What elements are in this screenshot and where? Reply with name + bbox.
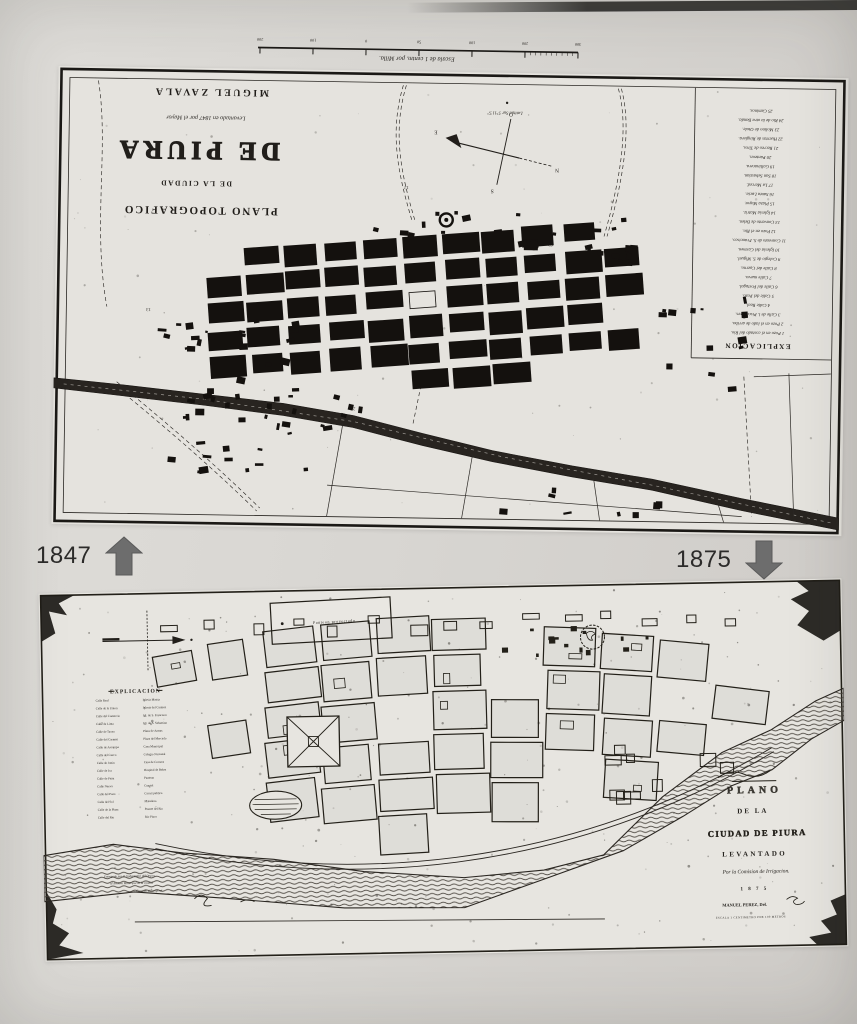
- photographed-document-page: Escala de 1 centm. por Milla. 3002001005…: [0, 0, 857, 1024]
- bottom-legend-item: Casa de Correos: [144, 760, 165, 764]
- top-legend-item: 12 Pozo en el Rio.: [742, 229, 776, 235]
- top-legend-item: 2 Pozo en el lado de arriba.: [732, 321, 783, 327]
- bottom-legend-item: Calle del Carmen: [96, 737, 118, 741]
- field-lines: [327, 366, 831, 524]
- top-map-svg: EXPLICACION 1 Pozo en el costado del Rio…: [51, 66, 848, 536]
- bottom-legend-item: Calle de Lima: [96, 722, 114, 726]
- year-label-1847: 1847: [36, 542, 91, 570]
- top-legend-item: 22 Huertas de Ringlera.: [738, 136, 782, 142]
- road-number: 12: [403, 185, 408, 190]
- svg-text:200: 200: [257, 37, 263, 42]
- note-line: Copiado del original.: [136, 888, 163, 893]
- top-legend-item: 19 Gallinacera.: [746, 164, 775, 169]
- top-legend-item: 6 Calle del Portugal.: [739, 284, 778, 290]
- top-legend-item: 15 Plaza Mayor.: [744, 201, 774, 206]
- bottom-legend-item: Calle de la Plaza: [98, 807, 119, 811]
- legend-items: 1 Pozo en el costado del Rio.2 Pozo en e…: [730, 108, 788, 336]
- year-label-1875-row: 1875: [676, 540, 783, 580]
- bottom-legend-item: Calle de Arequipa: [96, 745, 119, 749]
- bottom-legend-item: Cuartel: [144, 783, 153, 787]
- bottom-legend-item: Rio Piura: [145, 815, 157, 819]
- scale-bar: Escala de 1 centm. por Milla. 3002001005…: [250, 35, 584, 66]
- map-1875-ciudad-de-piura: Panteon proyectado: [39, 578, 849, 961]
- svg-text:0: 0: [365, 39, 367, 44]
- top-legend-item: 18 San Sebastian.: [744, 173, 777, 179]
- bottom-legend-item: Panteon: [144, 776, 154, 780]
- top-legend-item: 7 Calle nueva.: [745, 275, 772, 280]
- top-legend-item: 8 Calle del Cuerno.: [740, 266, 776, 272]
- bottom-legend-item: Calle de Paita: [97, 776, 115, 780]
- svg-text:50: 50: [417, 39, 421, 44]
- compass-icon: O S N E: [433, 110, 560, 195]
- title-delineator: MANUEL PEREZ, Del.: [722, 902, 767, 908]
- title-ornament: PLANO: [727, 785, 782, 797]
- title-levantado: LEVANTADO: [722, 849, 787, 858]
- compass-letter-n: N: [555, 167, 559, 173]
- latitude-note: Latitud Sur 5°11'5'': [486, 110, 524, 116]
- top-legend-item: 1 Pozo en el costado del Rio.: [731, 330, 785, 336]
- bottom-legend-item: Hospital de Belen: [144, 768, 167, 772]
- legend-header: EXPLICACION: [110, 688, 161, 695]
- title-de-piura: DE PIURA: [115, 135, 280, 167]
- city-grid-blocks: [152, 608, 773, 859]
- bottom-legend-item: Plaza del Mercado: [143, 736, 167, 740]
- bottom-legend-item: Calle del Pozo: [97, 792, 116, 796]
- bottom-legend-item: Plaza de Armas: [143, 729, 163, 733]
- title-ciudad-de-piura: CIUDAD DE PIURA: [708, 827, 807, 839]
- svg-text:100: 100: [469, 40, 475, 45]
- top-legend-item: 25 Caminos.: [749, 108, 772, 113]
- bottom-legend-item: Calle de Tacna: [96, 729, 115, 733]
- top-legend-item: 20 Panteon.: [749, 155, 771, 160]
- top-legend-item: 9 Colegio de S. Miguel.: [737, 256, 780, 262]
- scale-caption: Escala de 1 centm. por Milla.: [379, 54, 456, 62]
- bottom-legend-item: Igl. de S. Francisco: [143, 713, 167, 717]
- shoreline: [135, 913, 605, 928]
- legend-columns: Calle RealCalle de la UnionCalle del Com…: [96, 697, 170, 819]
- compass-letter-o: O: [509, 111, 513, 117]
- road-number: 13: [145, 307, 150, 312]
- signature-squiggle: [786, 896, 804, 904]
- up-arrow-icon: [105, 536, 143, 576]
- bottom-legend-item: Carcel publica: [144, 791, 163, 795]
- author-name: MIGUEL ZAVALA: [153, 85, 269, 98]
- bottom-legend-item: Calle Nueva: [97, 784, 113, 788]
- top-legend-item: 11 Convento de S. Francisco.: [732, 238, 786, 244]
- svg-text:200: 200: [522, 41, 528, 46]
- top-legend-item: 13 Convento de Belen.: [738, 219, 780, 225]
- bottom-legend-item: Calle del Sol: [98, 800, 114, 804]
- bottom-legend-item: Iglesia del Carmen: [143, 705, 167, 709]
- down-arrow-icon: [745, 540, 783, 580]
- bottom-legend-item: Calle del Rio: [98, 815, 115, 819]
- city-grid-blocks: [199, 211, 652, 413]
- title-plano-topografico: PLANO TOPOGRAFICO: [123, 203, 278, 217]
- top-legend-item: 16 Santa Lucia.: [745, 192, 774, 197]
- bottom-legend-item: Igl. de S. Sebastian: [143, 721, 167, 725]
- map-1847-plano-topografico: EXPLICACION 1 Pozo en el costado del Rio…: [51, 66, 848, 536]
- plaza-park: [287, 716, 340, 767]
- top-legend-item: 10 Iglesia del Carmen.: [738, 247, 780, 253]
- bottom-legend-item: Calle del Comercio: [96, 714, 121, 718]
- svg-text:300: 300: [575, 42, 581, 47]
- year-label-1875: 1875: [676, 546, 731, 574]
- legend-panel: EXPLICACION 1 Pozo en el costado del Rio…: [691, 88, 835, 360]
- river: [52, 378, 841, 530]
- oval-feature: [249, 791, 302, 820]
- bottom-legend-item: Casa Municipal: [143, 744, 163, 748]
- title-scale-line: ESCALA 1 CENTIMETRO POR 100 METROS: [716, 914, 786, 919]
- well-icon: [435, 211, 458, 234]
- bottom-legend-item: Puente del Rio: [145, 807, 164, 811]
- bottom-legend-item: Calle de Junin: [97, 761, 115, 765]
- bottom-legend-item: Calle del Cuzco: [97, 753, 117, 757]
- title-block: MIGUEL ZAVALA Levantado en 1847 por el M…: [114, 85, 281, 218]
- top-legend-item: 4 Calle Real.: [746, 303, 770, 308]
- bottom-legend-item: Calle de la Union: [96, 706, 118, 710]
- bottom-map-svg: Panteon proyectado: [39, 578, 849, 961]
- year-label-1847-row: 1847: [36, 536, 143, 576]
- top-legend-item: 21 Recreo de Tiros.: [743, 145, 779, 151]
- scale-bar-svg: Escala de 1 centm. por Milla. 3002001005…: [250, 35, 584, 66]
- legend-title: EXPLICACION: [724, 341, 791, 350]
- note-line: al Archivo Municipal de la ciudad.: [110, 881, 153, 886]
- title-de-la-ciudad: DE LA CIUDAD: [160, 178, 232, 188]
- top-legend-item: 14 Iglesia Matriz.: [743, 210, 776, 216]
- top-legend-item: 17 La Merced.: [746, 182, 773, 187]
- bottom-legend-item: Colegio Nacional: [144, 752, 166, 756]
- bottom-legend-item: Iglesia Matriz: [143, 697, 161, 701]
- svg-text:100: 100: [310, 38, 316, 43]
- compass-letter-s: S: [491, 188, 494, 194]
- latitude-marker: [506, 102, 508, 104]
- title-comision: Por la Comision de Irrigacion.: [721, 868, 789, 875]
- bottom-legend-item: Calle de Ica: [97, 769, 112, 773]
- bottom-legend-item: Calle Real: [96, 698, 109, 702]
- top-legend-item: 5 Calle del Pozo.: [742, 293, 774, 298]
- legend-panel: EXPLICACION Calle RealCalle de la UnionC…: [95, 688, 169, 819]
- bottom-legend-item: Matadero: [145, 799, 157, 803]
- top-legend-item: 24 Rio de la otra Banda.: [738, 118, 784, 124]
- survey-note: Levantado en 1847 por el Mayor: [166, 114, 247, 122]
- top-legend-item: 23 Molino de Otole.: [742, 127, 779, 133]
- photo-background-edge: [407, 0, 857, 13]
- compass-letter-e: E: [434, 129, 438, 135]
- title-de-la: DE LA: [737, 807, 768, 816]
- title-year: 1 8 7 5: [740, 887, 768, 893]
- scale-line: [258, 48, 578, 53]
